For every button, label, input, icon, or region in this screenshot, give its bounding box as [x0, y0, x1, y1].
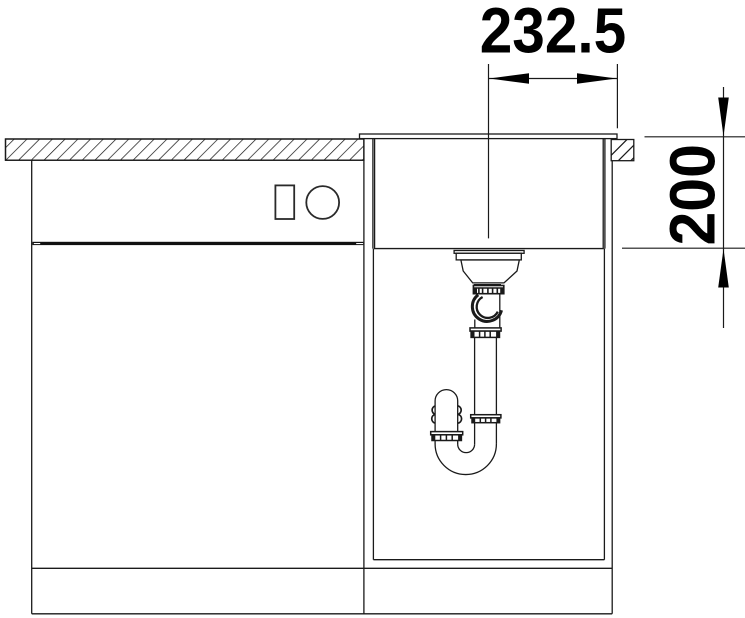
svg-text:232.5: 232.5: [480, 0, 627, 67]
svg-text:200: 200: [657, 144, 729, 246]
